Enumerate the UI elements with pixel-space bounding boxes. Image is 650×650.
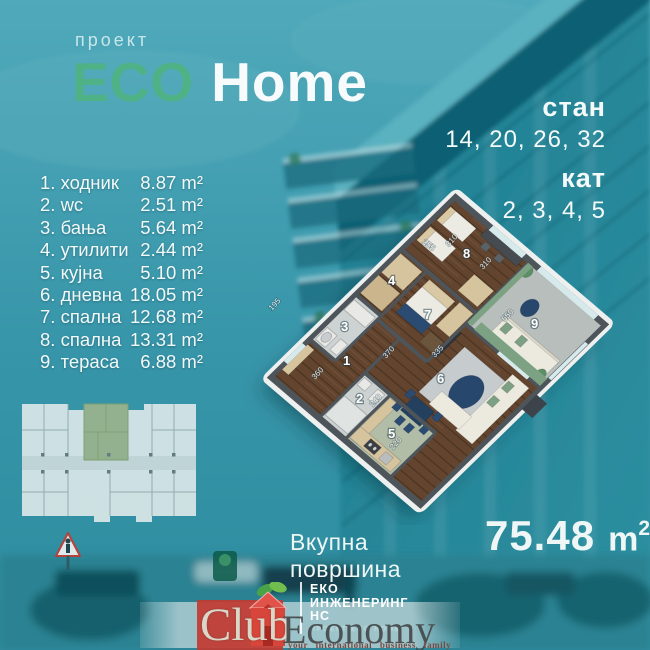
room-area: 8.87 m² [140, 172, 203, 194]
stan-label: стан [445, 92, 606, 123]
room-list: 1. ходник8.87 m² 2. wc2.51 m² 3. бања5.6… [40, 172, 203, 374]
total-area-label: Вкупна површина [290, 529, 472, 583]
room-list-item: 7. спална12.68 m² [40, 306, 203, 328]
room-7-number: 7 [424, 307, 431, 322]
room-6-number: 6 [437, 371, 444, 386]
room-list-item: 2. wc2.51 m² [40, 194, 203, 216]
developer-name-line1: ЕКО [310, 582, 408, 596]
total-area-value: 75.48 [485, 512, 595, 560]
room-area: 5.10 m² [140, 262, 203, 284]
room-label: 6. дневна [40, 284, 122, 306]
room-list-item: 3. бања5.64 m² [40, 217, 203, 239]
room-area: 18.05 m² [130, 284, 203, 306]
room-area: 12.68 m² [130, 306, 203, 328]
room-area: 5.64 m² [140, 217, 203, 239]
room-list-item: 8. спална13.31 m² [40, 329, 203, 351]
stan-values: 14, 20, 26, 32 [445, 126, 606, 154]
building-floorplan [14, 398, 204, 538]
unit-info: стан 14, 20, 26, 32 кат 2, 3, 4, 5 [445, 92, 606, 234]
room-4-number: 4 [388, 273, 396, 288]
room-list-item: 1. ходник8.87 m² [40, 172, 203, 194]
room-label: 2. wc [40, 194, 83, 216]
watermark-tagline: your international business family [288, 640, 456, 650]
room-area: 13.31 m² [130, 329, 203, 351]
room-label: 1. ходник [40, 172, 119, 194]
watermark-club: Club [200, 598, 291, 650]
title-eco: ECO [72, 50, 194, 114]
kat-values: 2, 3, 4, 5 [445, 197, 606, 225]
car [55, 570, 140, 596]
dim-195: 195 [267, 296, 283, 312]
room-8-number: 8 [463, 246, 470, 261]
room-3-number: 3 [341, 319, 348, 334]
kat-label: кат [445, 163, 606, 194]
room-9-number: 9 [531, 316, 538, 331]
room-area: 6.88 m² [140, 351, 203, 373]
room-list-item: 9. тераса6.88 m² [40, 351, 203, 373]
room-1-number: 1 [343, 353, 350, 368]
total-area: Вкупна површина 75.48 m2 [290, 512, 650, 583]
room-label: 4. утилити [40, 239, 129, 261]
room-list-item: 4. утилити2.44 m² [40, 239, 203, 261]
room-label: 9. тераса [40, 351, 119, 373]
plan-iso-group [271, 197, 617, 515]
room-label: 5. кујна [40, 262, 103, 284]
room-area: 2.51 m² [140, 194, 203, 216]
title-home: Home [211, 50, 368, 114]
signboard-logo [219, 554, 231, 566]
room-2-number: 2 [356, 391, 363, 406]
eco-home-flyer: проект ECO Home стан 14, 20, 26, 32 кат … [0, 0, 650, 650]
room-label: 8. спална [40, 329, 121, 351]
room-list-item: 6. дневна18.05 m² [40, 284, 203, 306]
page-title: ECO Home [72, 50, 368, 114]
room-label: 7. спална [40, 306, 121, 328]
room-label: 3. бања [40, 217, 106, 239]
total-area-unit: m2 [608, 520, 650, 559]
room-area: 2.44 m² [140, 239, 203, 261]
project-label: проект [75, 30, 149, 51]
room-list-item: 5. кујна5.10 m² [40, 262, 203, 284]
